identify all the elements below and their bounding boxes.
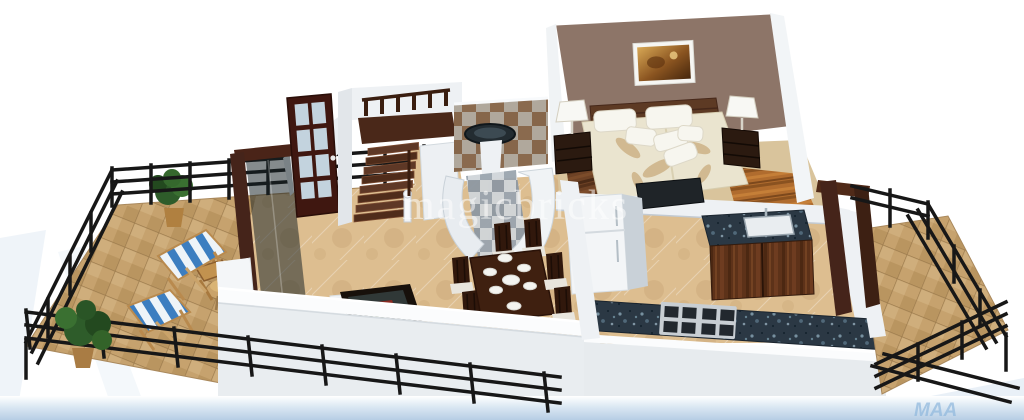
lamp-shade <box>726 96 758 118</box>
render-canvas: magicbricks MAA <box>0 0 1024 420</box>
stairwell-side-wall <box>338 88 352 226</box>
sink-cabinet <box>702 208 814 300</box>
corner-logo-text: MAA <box>914 400 957 420</box>
kitchen-sink <box>744 215 794 237</box>
floor-plan-render: magicbricks MAA <box>0 0 1024 420</box>
basin-pedestal <box>480 140 502 174</box>
gas-hob <box>659 302 737 340</box>
watermark-text: magicbricks <box>402 183 629 229</box>
nightstand-left <box>554 132 592 174</box>
entry-door <box>287 94 339 217</box>
dining-table <box>470 250 554 322</box>
wall-painting <box>633 40 695 85</box>
nightstand-right <box>722 128 760 168</box>
floor-reflection-strip <box>0 396 1024 420</box>
plant-pot <box>164 208 184 227</box>
lamp-shade <box>556 100 588 122</box>
door-handle <box>330 155 335 160</box>
